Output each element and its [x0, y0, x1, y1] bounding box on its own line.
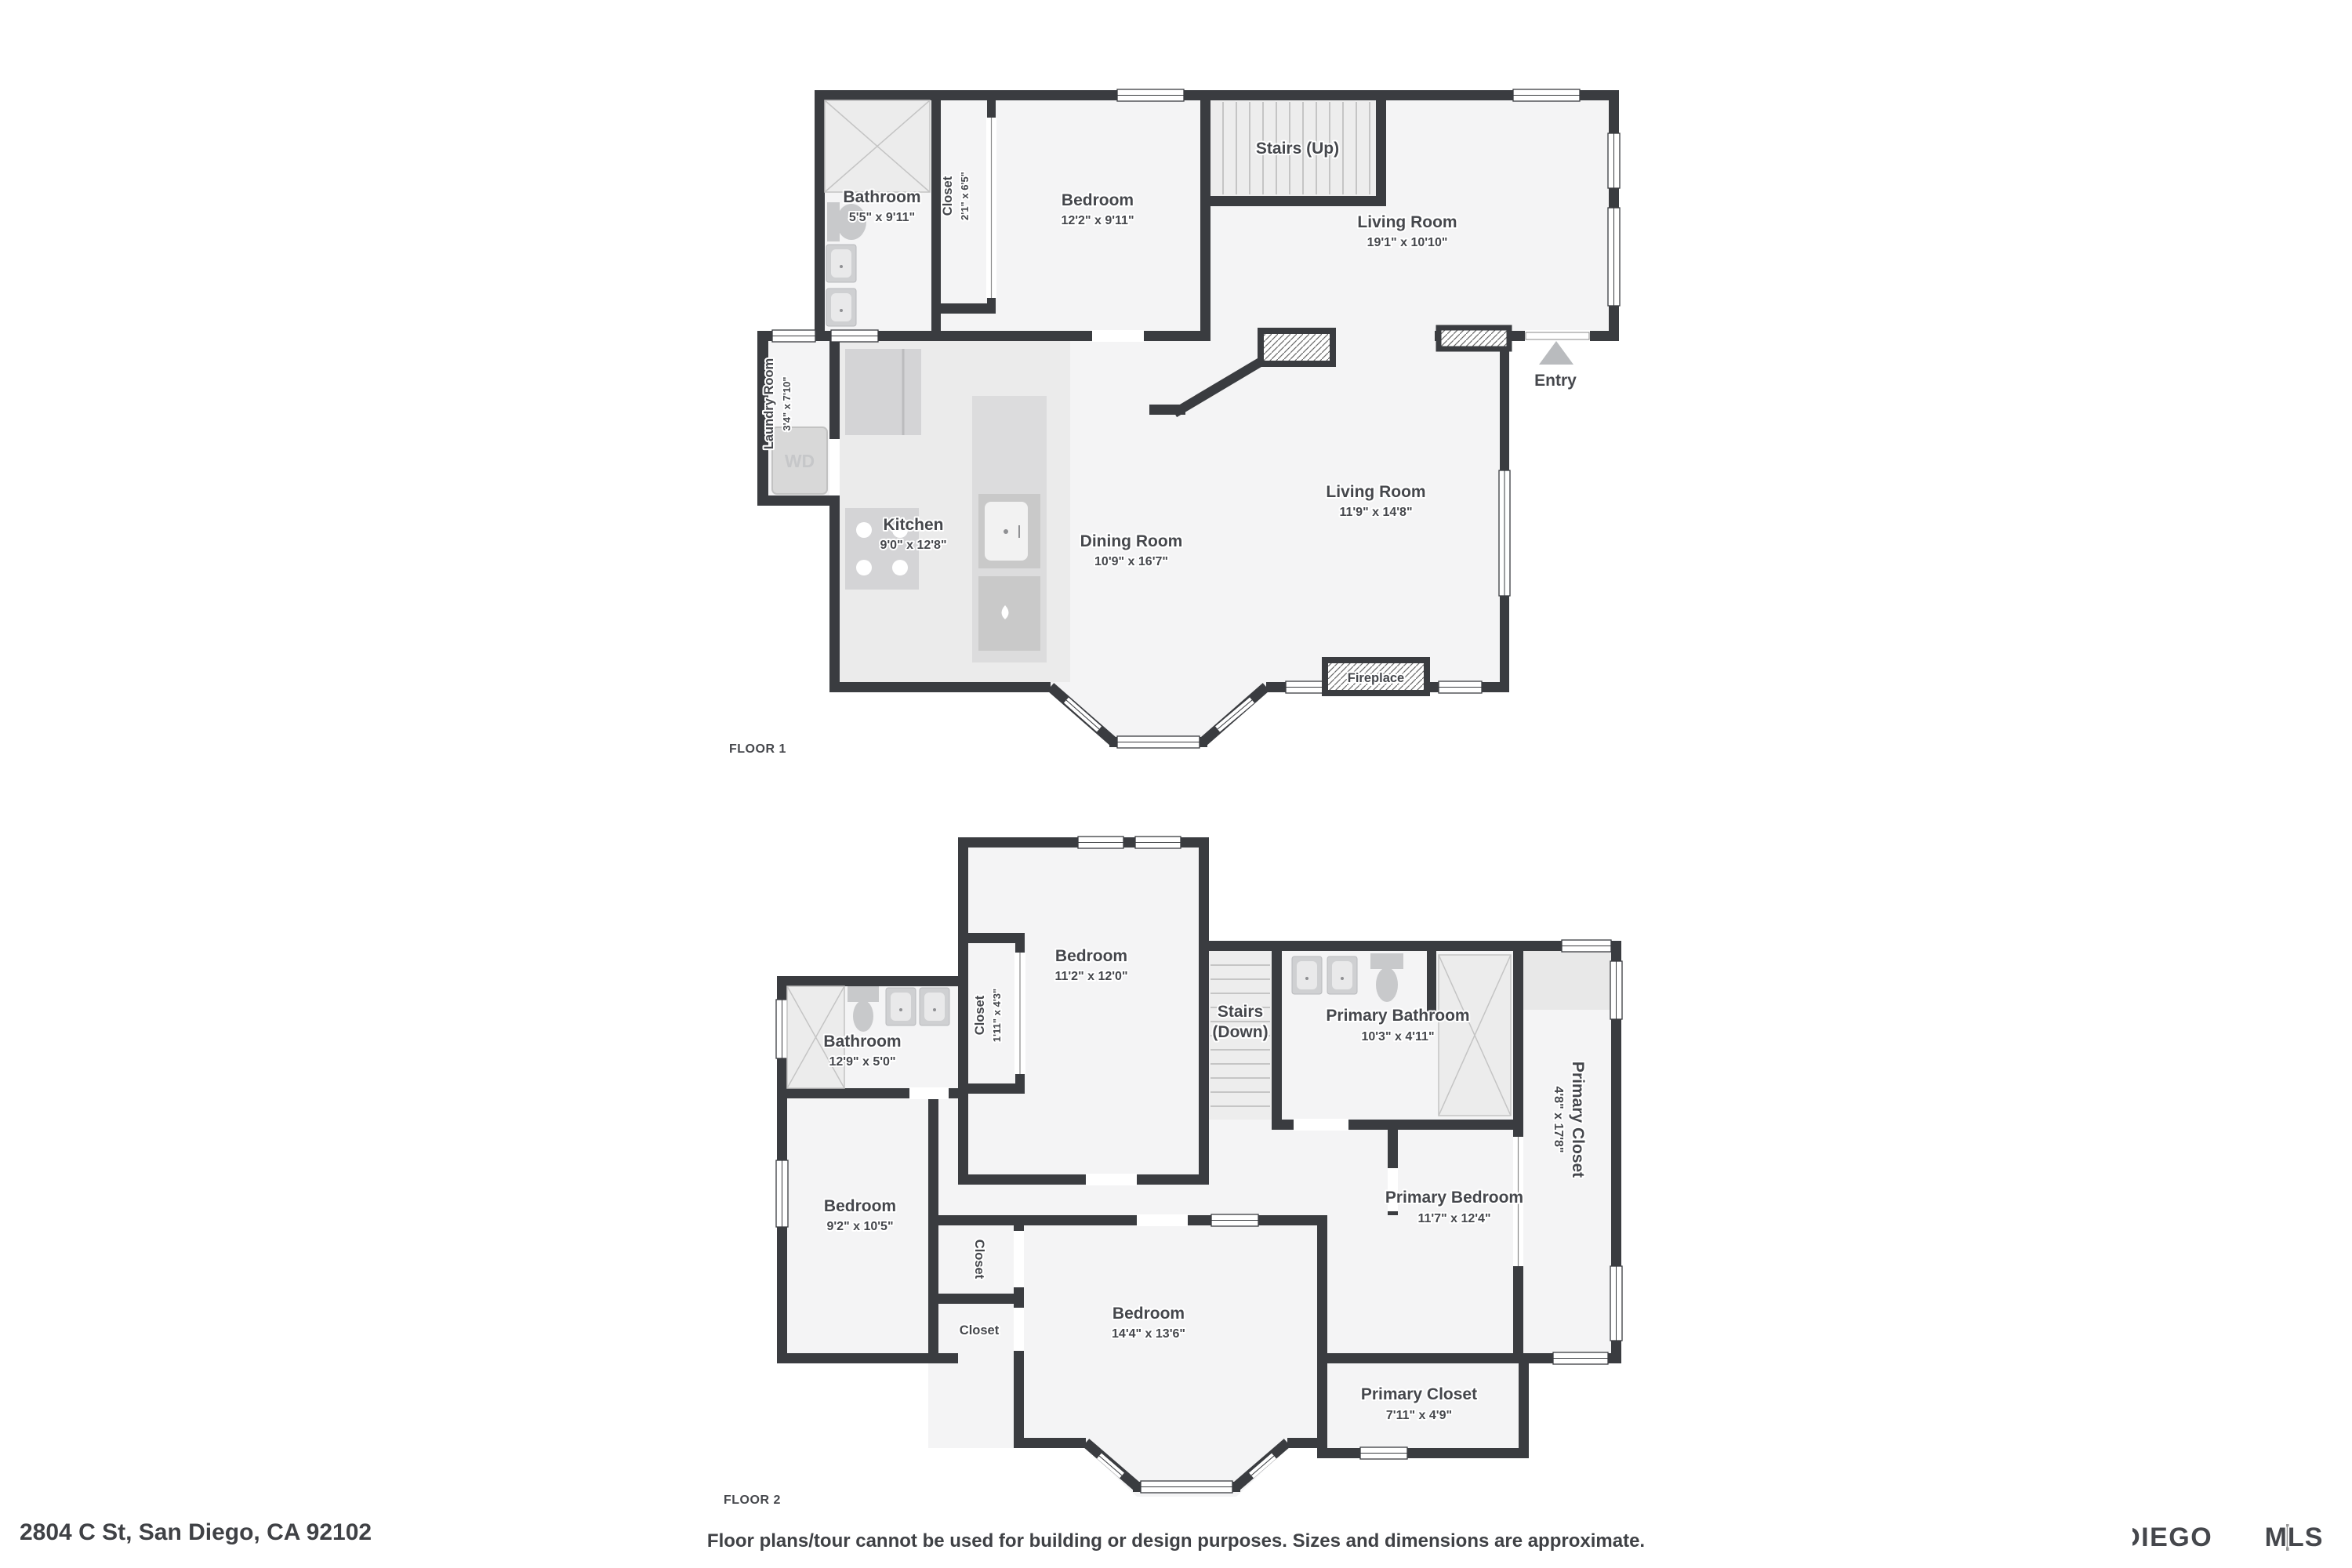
- floor1-title: FLOOR 1: [729, 742, 786, 756]
- floor2-plan: Bedroom 11'2" x 12'0" Closet 1'11" x 4'3…: [710, 823, 1650, 1521]
- svg-text:2'1" x 6'5": 2'1" x 6'5": [959, 172, 971, 220]
- svg-text:1'11" x 4'3": 1'11" x 4'3": [991, 989, 1003, 1042]
- floor2-bedroom-left-dims: 9'2" x 10'5": [826, 1220, 893, 1233]
- entry-arrow-icon: [1539, 341, 1573, 365]
- floor2-bedroom-left-label: Bedroom: [824, 1197, 896, 1215]
- floor1-living-upper-dims: 19'1" x 10'10": [1367, 236, 1448, 249]
- floor2-closet-mid2-label: Closet: [960, 1323, 1000, 1338]
- floor2-bathroom-dims: 12'9" x 5'0": [829, 1055, 895, 1069]
- entry-half-wall: [1439, 328, 1509, 349]
- half-wall-hatched-cap: [1261, 331, 1333, 364]
- svg-text:3'4" x 7'10": 3'4" x 7'10": [781, 376, 793, 430]
- dishwasher-icon: [978, 576, 1040, 651]
- svg-text:4'8" x 17'8": 4'8" x 17'8": [1552, 1086, 1565, 1152]
- svg-text:Closet: Closet: [973, 995, 987, 1035]
- floor2-primary-bedroom-dims: 11'7" x 12'4": [1417, 1212, 1490, 1225]
- shower-icon: [825, 100, 930, 192]
- floor1-bathroom-label: Bathroom: [843, 188, 920, 206]
- floor1-living-lower-label: Living Room: [1326, 483, 1425, 501]
- floor2-primary-closet2-dims: 7'11" x 4'9": [1386, 1409, 1452, 1422]
- kitchen-island: [972, 396, 1047, 662]
- disclaimer: Floor plans/tour cannot be used for buil…: [0, 1530, 2352, 1552]
- floor1-living-lower-dims: 11'9" x 14'8": [1339, 506, 1412, 519]
- closet-shelf: [1523, 951, 1611, 1010]
- floor1-bedroom-label: Bedroom: [1062, 191, 1134, 209]
- washer-dryer-label: WD: [785, 451, 815, 471]
- floor2-primary-bathroom-dims: 10'3" x 4'11": [1361, 1030, 1434, 1044]
- floor2-bedroom-top-label: Bedroom: [1055, 947, 1127, 965]
- floor1-kitchen-dims: 9'0" x 12'8": [880, 539, 946, 552]
- floor2-primary-bedroom-label: Primary Bedroom: [1385, 1189, 1523, 1207]
- floor2-title: FLOOR 2: [724, 1494, 781, 1507]
- entry-label: Entry: [1534, 372, 1577, 390]
- floor1-stairs-label: Stairs (Up): [1256, 140, 1339, 158]
- floor2-stairs-label-2: (Down): [1212, 1023, 1268, 1041]
- mls-logo-secondary: MLS: [2265, 1523, 2324, 1552]
- floor2-bedroom-lower-dims: 14'4" x 13'6": [1112, 1327, 1185, 1341]
- fridge-icon: [845, 349, 921, 435]
- floor2-primary-bathroom-label: Primary Bathroom: [1326, 1007, 1469, 1025]
- floor2-bedroom-top-dims: 11'2" x 12'0": [1054, 970, 1127, 983]
- floor2-primary-closet2-label: Primary Closet: [1361, 1385, 1477, 1403]
- mls-logo-primary: SAN DIEGO: [2132, 1523, 2212, 1552]
- mls-logo: SAN DIEGO MLS: [2132, 1516, 2328, 1557]
- floor1-bathroom-dims: 5'5" x 9'11": [849, 211, 915, 224]
- floor2-bedroom-lower-label: Bedroom: [1112, 1305, 1185, 1323]
- floor1-dining-dims: 10'9" x 16'7": [1094, 555, 1168, 568]
- floor2-bathroom-label: Bathroom: [823, 1033, 901, 1051]
- fireplace-label: Fireplace: [1348, 671, 1404, 685]
- primary-shower-icon: [1439, 955, 1511, 1116]
- floor1-living-upper-label: Living Room: [1357, 213, 1457, 231]
- svg-text:Closet: Closet: [972, 1240, 986, 1279]
- svg-text:Closet: Closet: [941, 176, 955, 216]
- floor2-closet-mid1-label: Closet: [972, 1240, 986, 1279]
- svg-text:Primary Closet: Primary Closet: [1569, 1062, 1587, 1178]
- svg-text:Laundry Room: Laundry Room: [762, 358, 776, 449]
- floor1-kitchen-label: Kitchen: [883, 516, 943, 534]
- floor1-bedroom-dims: 12'2" x 9'11": [1061, 214, 1134, 227]
- floor1-plan: Bathroom 5'5" x 9'11" Closet 2'1" x 6'5"…: [713, 71, 1631, 760]
- floor1-dining-label: Dining Room: [1080, 532, 1183, 550]
- floor2-stairs-label-1: Stairs: [1218, 1003, 1263, 1021]
